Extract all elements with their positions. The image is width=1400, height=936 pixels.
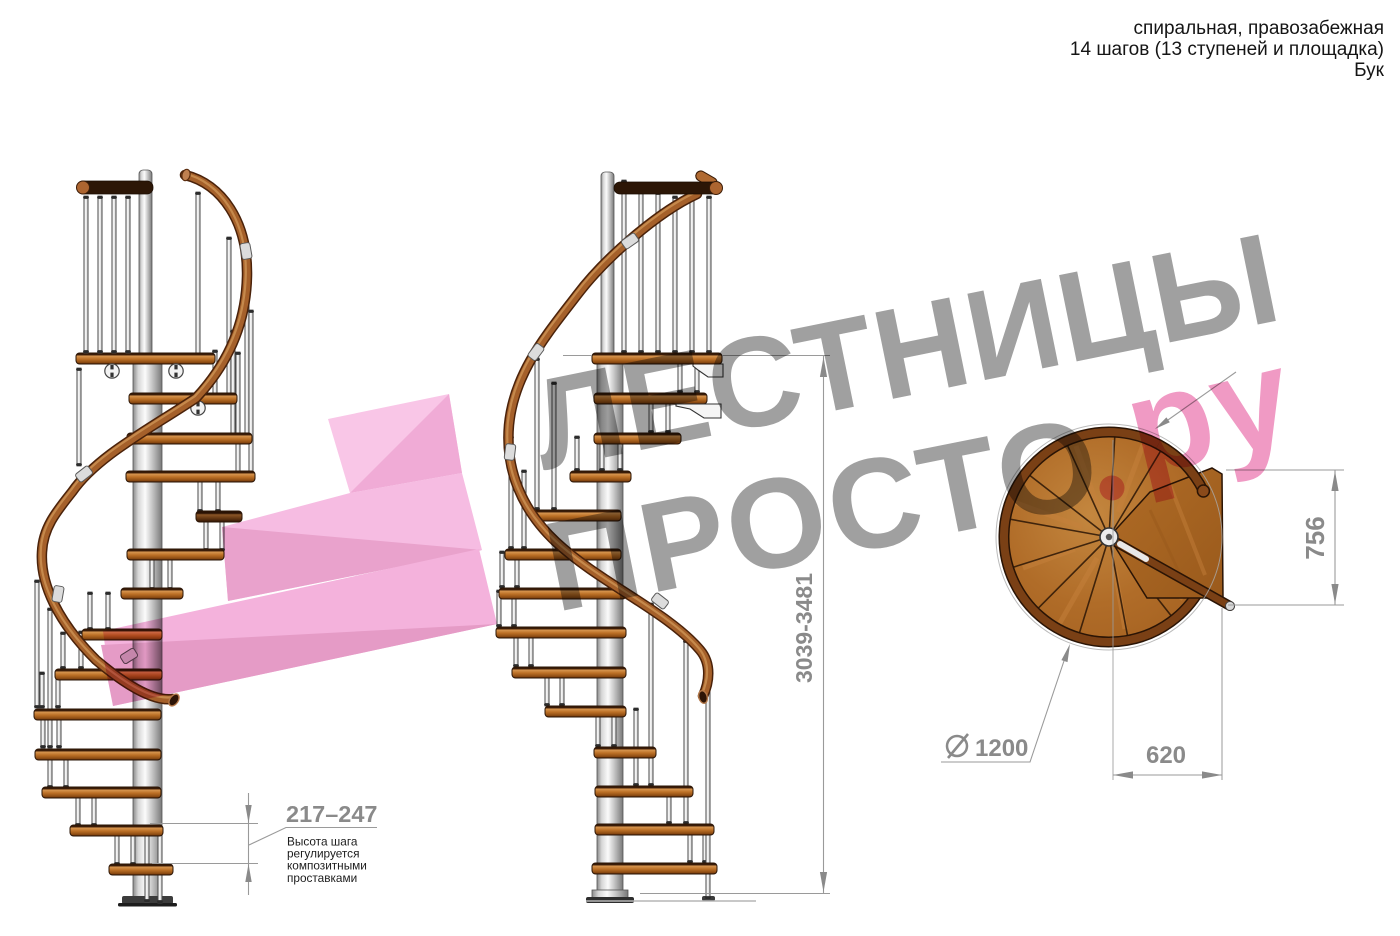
svg-text:проставками: проставками <box>287 871 357 885</box>
svg-text:217–247: 217–247 <box>286 801 378 827</box>
svg-text:спиральная, правозабежная: спиральная, правозабежная <box>1134 18 1384 39</box>
svg-text:1200: 1200 <box>975 735 1028 762</box>
svg-text:756: 756 <box>1300 516 1330 559</box>
svg-text:620: 620 <box>1146 742 1186 769</box>
svg-text:Бук: Бук <box>1354 60 1385 81</box>
svg-text:14 шагов (13 ступеней и площад: 14 шагов (13 ступеней и площадка) <box>1070 39 1384 60</box>
